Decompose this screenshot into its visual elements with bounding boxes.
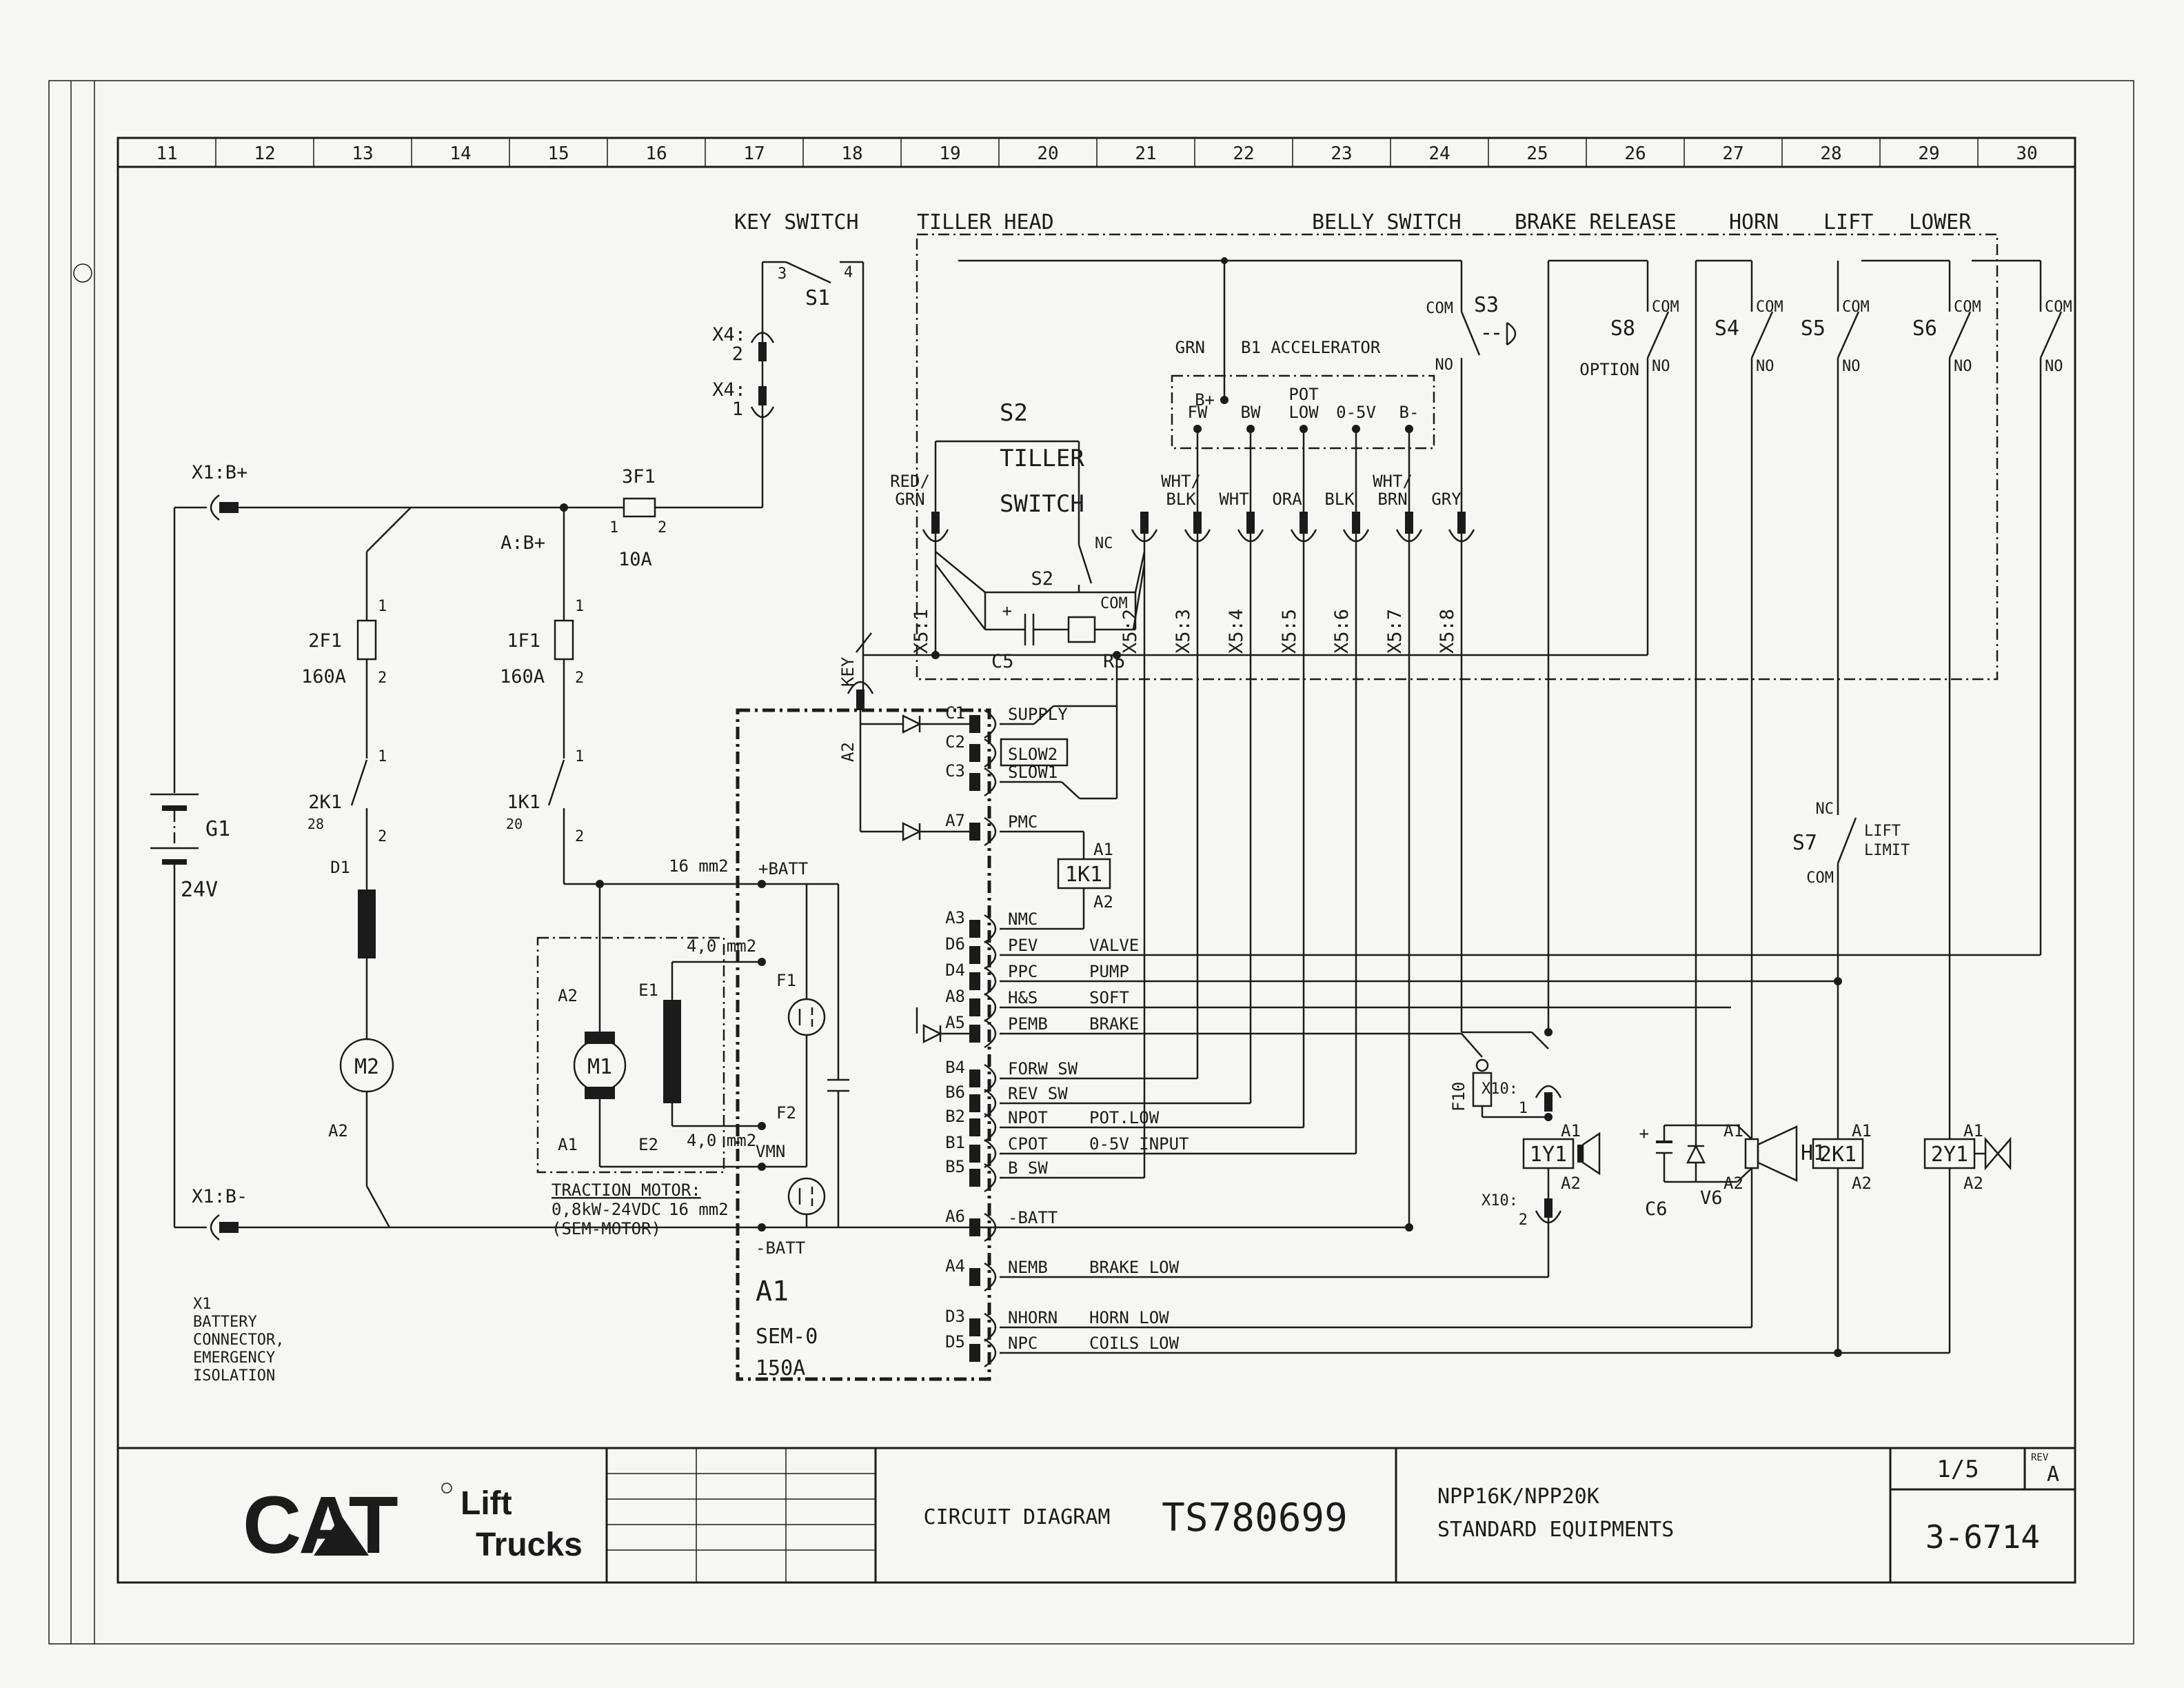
accel-fw: FW [1188,403,1208,422]
contact-1k1-label: 1K1 [507,792,540,813]
contact-2k1-t1: 1 [378,748,387,765]
s5-no: NO [1842,358,1861,375]
pin-a6: A6 [945,1207,965,1226]
s4-blade [1752,312,1772,358]
pin-b4: B4 [945,1058,965,1077]
accel-name: B1 ACCELERATOR [1241,338,1381,357]
connector-x1bp-icon [211,495,219,520]
pin-b5: B5 [945,1157,965,1176]
pin-b1: B1 [945,1133,965,1152]
ruler-17: 17 [743,143,765,164]
diode-d1-label: D1 [330,858,350,877]
note-coilslow: COILS LOW [1089,1334,1180,1353]
circuit-diagram-page: 11 12 13 14 15 16 17 18 19 20 21 22 23 2… [0,0,2184,1688]
fuse-2f1-label: 2F1 [308,630,342,652]
title-block: CIRCUIT DIAGRAM TS780699 NPP16K/NPP20K S… [118,1448,2075,1582]
color-x5-1a: RED/ [890,472,930,491]
x1-note-5: ISOLATION [193,1367,275,1385]
x1-bminus-label: X1:B- [192,1186,247,1207]
s4-no: NO [1756,358,1775,375]
fuse-3f1-t1: 1 [609,519,618,536]
sig-hs: H&S [1008,988,1038,1007]
s7-lift: LIFT [1864,823,1901,840]
ruler-30: 30 [2016,143,2037,164]
fuse-1f1-t1: 1 [575,598,584,615]
sig-npot: NPOT [1008,1108,1048,1127]
x10-1-num: 1 [1519,1100,1528,1117]
note-soft: SOFT [1089,988,1129,1007]
schematic-svg: 11 12 13 14 15 16 17 18 19 20 21 22 23 2… [0,0,2184,1688]
c6-plus: + [1639,1124,1649,1143]
sig-nhorn: NHORN [1008,1308,1058,1327]
ruler-29: 29 [1918,143,1939,164]
color-x5-6: BLK [1324,490,1355,509]
s8-label: S8 [1610,316,1635,341]
pin-b6: B6 [945,1083,965,1102]
x10-1-label: X10: [1482,1081,1518,1098]
x5-1-label: X5:1 [911,609,932,654]
m1-a1: A1 [558,1135,578,1154]
ruler-28: 28 [1820,143,1841,164]
sig-pemb: PEMB [1008,1014,1048,1034]
note-hornlow: HORN LOW [1089,1308,1169,1327]
x5-3-label: X5:3 [1173,609,1194,654]
color-x5-7b: BRN [1377,490,1407,509]
controller-a1: A1 SEM-0 150A KEY A2 +BATT F1 F2 VMN -BA… [738,655,1117,1380]
a1-pin-notes: VALVE PUMP SOFT BRAKE POT.LOW 0-5V INPUT… [1089,936,1189,1353]
doc-number: TS780699 [1162,1496,1348,1540]
x4-1-label: X4: [712,379,746,401]
fuse-3f1-rating: 10A [618,549,652,570]
s2-label: S2 [1031,568,1053,590]
accel-grn: GRN [1175,338,1205,357]
fuse-2f1-t1: 1 [378,598,387,615]
s6-blade [1950,312,1970,358]
coil-1y1-label: 1Y1 [1530,1143,1567,1167]
sig-bsw: B SW [1008,1158,1048,1178]
sx-com: COM [2045,299,2072,316]
x1-note-3: CONNECTOR, [193,1332,284,1349]
key-switch-section: 3 4 S1 X4: 2 X4: 1 [712,262,871,690]
pin-d6: D6 [945,934,965,954]
coil-1k1-label: 1K1 [1065,863,1102,887]
accel-pot-2: LOW [1288,403,1319,422]
s3-com: COM [1426,300,1453,317]
fuse-3f1-icon [624,499,655,516]
sig-nmc: NMC [1008,910,1038,929]
fuse-1f1-rating: 160A [500,666,545,687]
wire-4mm2-bottom: 4,0 mm2 [687,1131,756,1150]
pin-c2: C2 [945,732,965,752]
a1-rating: 150A [756,1356,805,1380]
h1-a2: A2 [1723,1174,1743,1193]
k2-a1: A1 [1852,1121,1872,1141]
sig-ppc: PPC [1008,962,1038,981]
diode-icon [903,823,920,840]
note-brake: BRAKE [1089,1014,1139,1034]
pin-c1: C1 [945,703,965,723]
fuse-1f1-icon [555,621,573,659]
s8-blade [1648,312,1668,358]
coil-2y1-label: 2Y1 [1931,1143,1968,1167]
pin-a5: A5 [945,1013,965,1032]
sig-pev: PEV [1008,936,1038,955]
term-f2: F2 [776,1103,796,1123]
a1-pin-codes: C1 C2 C3 A7 A3 D6 D4 A8 A5 B4 B6 B2 B1 B… [945,703,965,1352]
s6-no: NO [1954,358,1972,375]
ruler-23: 23 [1331,143,1352,164]
ruler-14: 14 [449,143,471,164]
fuse-1f1-t2: 2 [575,670,584,687]
s3-no: NO [1435,356,1454,374]
ruler-18: 18 [841,143,862,164]
battery-voltage: 24V [181,878,218,902]
contact-2k1-sub: 28 [307,816,324,832]
ruler-25: 25 [1526,143,1548,164]
rev-label: REV [2031,1452,2049,1463]
color-x5-3b: BLK [1166,490,1196,509]
sx-no: NO [2045,358,2063,375]
horn-h1-icon [1746,1139,1758,1168]
connector-x1bm-icon [211,1215,219,1240]
coil-1k1-a1: A1 [1093,840,1113,859]
x4-1-num: 1 [732,399,743,420]
resistor-r5-icon [1069,617,1095,642]
color-x5-4: WHT [1219,490,1248,509]
valve-icon [1985,1139,2010,1168]
model-sub: STANDARD EQUIPMENTS [1437,1518,1674,1542]
a1-pin-signals: SUPPLY SLOW2 SLOW1 PMC NMC PEV PPC H&S P… [1008,705,1078,1353]
contact-2k1-t2: 2 [378,828,387,845]
buzzer-icon [1583,1134,1599,1174]
pin-a8: A8 [945,987,965,1006]
x10-2-num: 2 [1519,1212,1528,1229]
mosfet-icon [789,1178,825,1214]
color-x5-5: ORA [1272,490,1302,509]
sig-nemb: NEMB [1008,1258,1048,1277]
s5-blade [1838,312,1859,358]
accel-bw: BW [1241,403,1261,422]
s7-com: COM [1806,870,1834,887]
term-batp: +BATT [758,859,808,878]
m1-a2: A2 [558,986,578,1005]
ruler-22: 22 [1233,143,1254,164]
note-valve: VALVE [1089,936,1139,955]
wire-4mm2-top: 4,0 mm2 [687,936,756,956]
label-lift: LIFT [1823,210,1873,234]
y1-a2: A2 [1561,1174,1581,1193]
c6-label: C6 [1645,1198,1668,1220]
a1-pins: C1 C2 C3 A7 A3 D6 D4 A8 A5 B4 B6 B2 B1 B… [945,703,1189,1367]
a1-name: A1 [756,1276,789,1307]
fuse-1f1-label: 1F1 [507,630,540,652]
color-x5-7a: WHT/ [1373,472,1413,491]
key-pin-label: KEY [838,656,858,687]
ruler-15: 15 [547,143,569,164]
y2-a1: A1 [1963,1121,1983,1141]
output-coils-section: F10 X10: 1 A1 1Y1 A2 X10: 2 + C6 V6 [1449,1060,2010,1353]
logo-trucks: Trucks [476,1527,583,1563]
ruler-24: 24 [1428,143,1450,164]
contact-1k1-sub: 20 [506,816,523,832]
label-belly-switch: BELLY SWITCH [1312,210,1462,234]
diode-icon [924,1025,940,1042]
accel-05v: 0-5V [1336,403,1376,422]
x4-2-num: 2 [732,343,743,365]
sig-rev: REV SW [1008,1084,1068,1103]
motor-m1-label: M1 [587,1055,612,1079]
rev-value: A [2047,1463,2059,1487]
x5-2-label: X5:2 [1120,609,1141,654]
pin-a3: A3 [945,908,965,927]
c5-plus: + [1002,601,1012,621]
cat-logo-text: CAT [243,1480,398,1571]
s6-label: S6 [1912,316,1937,341]
s1-label: S1 [805,286,830,310]
diode-icon [903,716,920,732]
term-f1: F1 [776,971,796,990]
note-05vinput: 0-5V INPUT [1089,1134,1189,1154]
ruler-19: 19 [939,143,960,164]
x5-8-label: X5:8 [1437,609,1458,654]
term-vmn: VMN [756,1142,785,1161]
label-brake-release: BRAKE RELEASE [1515,210,1677,234]
node-abplus: A:B+ [501,532,545,554]
x4-2-label: X4: [712,324,746,345]
x10-2-label: X10: [1482,1192,1518,1209]
x5-4-label: X5:4 [1226,609,1247,654]
m1-e2: E2 [638,1135,658,1154]
s7-blade [1838,818,1856,863]
sig-npc: NPC [1008,1334,1038,1353]
ruler-20: 20 [1037,143,1058,164]
s3-actuator-icon [1507,323,1515,345]
s8-no: NO [1652,358,1670,375]
motor-m2-label: M2 [354,1055,379,1079]
ruler-26: 26 [1624,143,1646,164]
ruler-12: 12 [254,143,275,164]
fuse-3f1-label: 3F1 [622,466,656,488]
pin-d4: D4 [945,961,965,980]
ruler-27: 27 [1722,143,1743,164]
model-name: NPP16K/NPP20K [1437,1485,1599,1509]
diode-d1-icon [358,890,376,958]
sx-blade [2041,312,2061,358]
contact-1k1-t2: 2 [575,828,584,845]
s4-com: COM [1756,299,1783,316]
note-brakelow: BRAKE LOW [1089,1258,1180,1277]
mosfet-icon [789,999,825,1035]
traction-note-2: 0,8kW-24VDC [552,1200,661,1219]
ruler-16: 16 [645,143,667,164]
pin-d5: D5 [945,1332,965,1352]
wire-16mm2-top: 16 mm2 [669,856,729,876]
x1-note-4: EMERGENCY [193,1349,275,1367]
fuse-f10-label: F10 [1449,1082,1468,1112]
a1-model: SEM-0 [756,1325,818,1349]
pin-a7: A7 [945,811,965,830]
pin-a4: A4 [945,1256,965,1276]
sig-pmc: PMC [1008,812,1038,832]
s2-blade [1079,545,1091,583]
pin-b2: B2 [945,1107,965,1126]
x5-5-label: X5:5 [1279,609,1300,654]
x5-7-label: X5:7 [1384,609,1406,654]
accel-pot-1: POT [1288,385,1318,404]
cat-logo: CAT Lift Trucks [243,1480,583,1571]
note-potlow: POT.LOW [1089,1108,1160,1127]
term-batm: -BATT [756,1238,805,1258]
pin-d3: D3 [945,1307,965,1326]
y1-a1: A1 [1561,1121,1581,1141]
sig-supply: SUPPLY [1008,705,1068,724]
pin-c3: C3 [945,761,965,781]
note-pump: PUMP [1089,962,1129,981]
ruler-13: 13 [352,143,373,164]
sig-forw: FORW SW [1008,1059,1078,1078]
traction-note-1: TRACTION MOTOR: [552,1180,701,1200]
wire-16mm2-bottom: 16 mm2 [669,1200,729,1219]
s7-limit: LIMIT [1864,842,1910,859]
column-ruler: 11 12 13 14 15 16 17 18 19 20 21 22 23 2… [156,138,2037,167]
motor-m2-a2: A2 [328,1121,348,1141]
fuse-3f1-t2: 2 [658,519,667,536]
h1-a1: A1 [1723,1121,1743,1141]
sig-cpot: CPOT [1008,1134,1048,1154]
k2-a2: A2 [1852,1174,1872,1193]
traction-motor-section: M1 A2 A1 E1 E2 4,0 mm2 4,0 mm2 TRACTION … [538,884,762,1238]
s7-label: S7 [1792,831,1817,855]
accel-bminus: B- [1399,403,1419,422]
section-headers: KEY SWITCH TILLER HEAD BELLY SWITCH BRAK… [734,210,1972,234]
fuse-2f1-t2: 2 [378,670,387,687]
contact-2k1-blade [352,760,367,805]
diode-v6-icon [1688,1146,1704,1163]
y2-a2: A2 [1963,1174,1983,1193]
s1-blade [786,262,831,283]
m1-e1: E1 [638,981,658,1000]
color-x5-1b: GRN [895,490,924,509]
c5-label: C5 [991,651,1014,672]
label-key-switch: KEY SWITCH [734,210,859,234]
sig-slow1: SLOW1 [1008,763,1058,782]
binder-hole [74,264,92,282]
color-x5-3a: WHT/ [1161,472,1201,491]
a1-pin-bullets [969,710,995,1367]
ruler-11: 11 [156,143,177,164]
coil-2k1-label: 2K1 [1819,1143,1857,1167]
logo-lift: Lift [461,1485,512,1522]
fuse-2f1-icon [358,621,376,659]
s3-label: S3 [1474,293,1499,317]
doc-type: CIRCUIT DIAGRAM [924,1505,1111,1529]
s2-title-1: S2 [1000,399,1028,427]
key-pin-a2: A2 [838,742,858,762]
label-lower: LOWER [1909,210,1972,234]
color-x5-8: GRY [1431,490,1462,509]
sig-slow2: SLOW2 [1008,745,1058,764]
s1-t4: 4 [844,264,853,281]
drawing-code: 3-6714 [1925,1518,2040,1556]
traction-note-3: (SEM-MOTOR) [552,1219,661,1238]
x5-6-label: X5:6 [1331,609,1353,654]
v6-label: V6 [1700,1187,1723,1209]
coil-1k1-a2: A2 [1093,892,1113,912]
s2-title-3: SWITCH [1000,490,1084,518]
contact-1k1-t1: 1 [575,748,584,765]
x1-note-2: BATTERY [193,1314,257,1331]
s1-t3: 3 [778,265,787,283]
s5-label: S5 [1801,316,1826,341]
s8-option: OPTION [1579,360,1639,379]
s3-blade [1462,312,1479,355]
page-number: 1/5 [1937,1456,1979,1483]
contact-2k1-label: 2K1 [308,792,342,813]
s6-com: COM [1954,299,1981,316]
sig-batt: -BATT [1008,1208,1058,1227]
label-horn: HORN [1729,210,1779,234]
s2-title-2: TILLER [1000,445,1084,472]
field-coil-e1-icon [663,1000,681,1103]
x1-bplus-label: X1:B+ [192,462,247,483]
x1-note-1: X1 [193,1296,212,1313]
registered-mark-icon [442,1483,452,1493]
s8-com: COM [1652,299,1679,316]
s2-nc: NC [1095,535,1113,552]
s7-nc: NC [1816,801,1834,818]
contact-1k1-blade [549,760,564,805]
s4-label: S4 [1715,316,1739,341]
ruler-21: 21 [1135,143,1156,164]
s5-com: COM [1842,299,1870,316]
fuse-2f1-rating: 160A [301,666,346,687]
label-tiller-head: TILLER HEAD [917,210,1054,234]
battery-g1-label: G1 [205,817,230,841]
